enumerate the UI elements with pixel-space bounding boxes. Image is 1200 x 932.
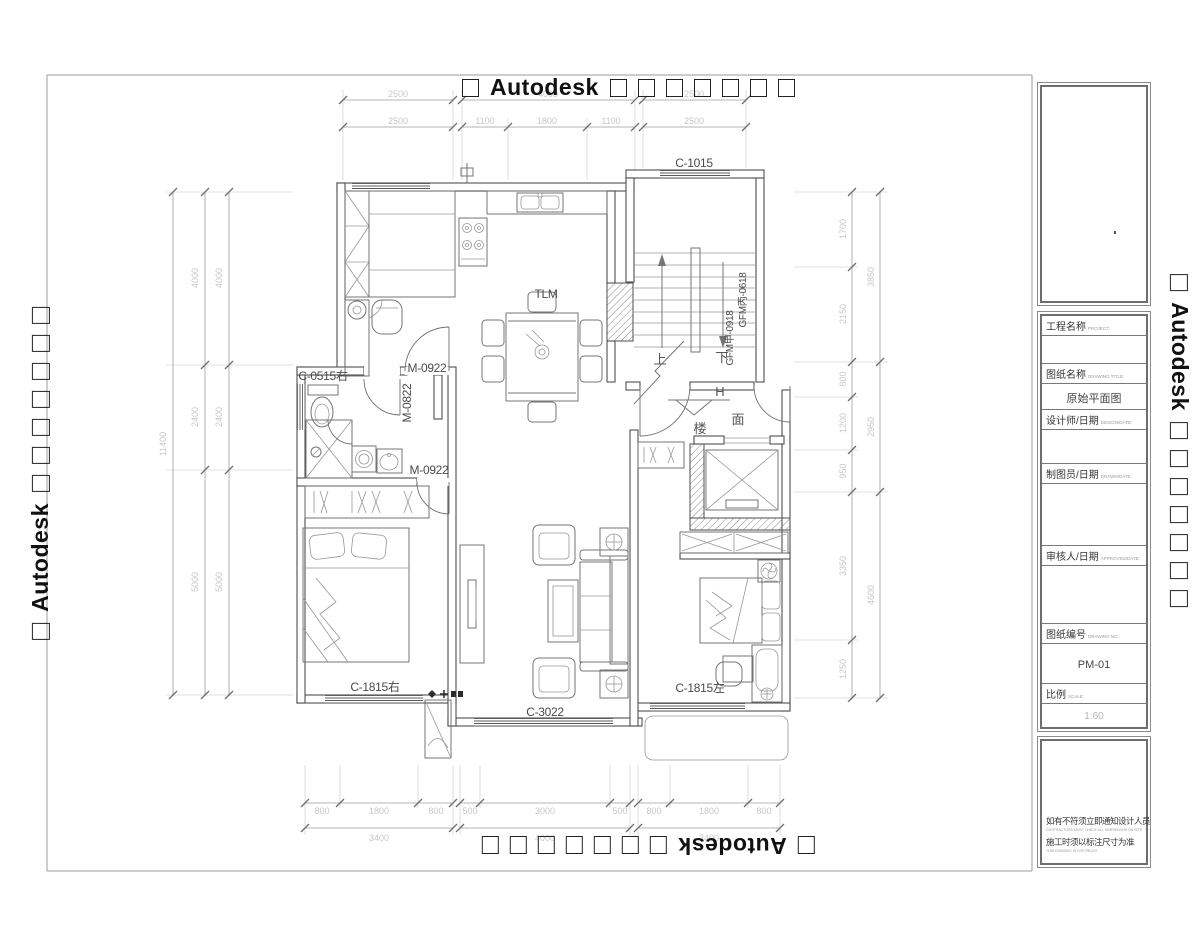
fan: [758, 560, 780, 582]
dim-value: 1100: [475, 116, 494, 126]
dim-value: 2500: [684, 116, 704, 126]
note-cn-1: 如有不符须立即通知设计人员: [1046, 815, 1142, 827]
note-cn-2: 施工时须以标注尺寸为准: [1046, 836, 1142, 848]
field-scale-value: 1:60: [1042, 704, 1146, 727]
watermark-left: Autodesk: [27, 307, 54, 640]
watermark-top: Autodesk: [462, 74, 795, 101]
plant: [348, 301, 366, 319]
dim-value: 1800: [699, 806, 719, 816]
dim-value: 1800: [369, 806, 389, 816]
watermark-bottom: Autodesk: [482, 832, 815, 859]
field-drawing-no-value: PM-01: [1042, 644, 1146, 684]
bay-window-outline: [645, 716, 788, 760]
dining-room-label: TLM: [534, 287, 557, 301]
elevator-core: [706, 438, 778, 510]
field-designer-value: [1042, 430, 1146, 464]
dim-value: 4600: [866, 585, 876, 605]
logo-dot: [1114, 231, 1116, 234]
window-label-c3022: C-3022: [526, 705, 564, 719]
dim-value: 2500: [388, 116, 408, 126]
field-scale-label: 比例SCALE:: [1042, 684, 1146, 704]
title-block-notes-box: 如有不符须立即通知设计人员 CONTRACTORS MUST CHECK ALL…: [1037, 736, 1151, 868]
watermark-glyph-box: [798, 837, 815, 855]
study-bed: [369, 191, 455, 297]
field-drawing-no-label: 图纸编号DRAWING NO.:: [1042, 624, 1146, 644]
sink: [517, 193, 563, 212]
closet-below-elevator: [680, 532, 788, 553]
dim-value: 5000: [214, 572, 224, 592]
dim-value: 1250: [838, 659, 848, 679]
living-room: [460, 525, 628, 698]
window-label-c1015: C-1015: [675, 156, 713, 170]
plan-labels: TLM C-1015 C-0515右 C-1815右 C-3022 C-1815…: [298, 156, 749, 719]
sheet-frame: [47, 75, 1032, 871]
dim-value: 1800: [537, 116, 557, 126]
armchair-bottom: [533, 658, 575, 698]
study-room: [345, 191, 455, 376]
tv-cabinet: [460, 545, 484, 663]
bath-window-c0515: [297, 384, 305, 430]
desk: [345, 300, 382, 376]
dim-left: 11400 4000 2400 5000 4000 2400 5000: [158, 188, 233, 699]
watermark-glyph-box: [1170, 274, 1188, 291]
master-bed: [303, 528, 409, 662]
title-block-fields: 工程名称PROJECT: 图纸名称DRAWING TITLE: 原始平面图 设计…: [1037, 311, 1151, 732]
field-designer-label: 设计师/日期DESIGN/DATE:: [1042, 410, 1146, 430]
stair-window-c1015: [660, 170, 730, 178]
dim-value: 800: [314, 806, 329, 816]
watermark-brand: Autodesk: [1166, 302, 1193, 411]
watermark-glyph-box: [462, 79, 479, 97]
dim-value: 4000: [214, 268, 224, 288]
desk-chair: [372, 300, 402, 334]
washer: [352, 446, 376, 472]
door-label-fire1: GFM甲-0918: [725, 310, 736, 366]
dim-value: 3000: [535, 806, 555, 816]
study-window: [352, 183, 430, 191]
dim-value: 800: [838, 371, 848, 386]
window-label-c1815r: C-1815右: [350, 679, 400, 694]
stair-up-label: 上: [653, 352, 666, 367]
door-label-fire2: GFM丙-0618: [738, 272, 749, 328]
field-drawing-title-value: 原始平面图: [1042, 384, 1146, 410]
master-door: [417, 478, 449, 514]
note-en-1: CONTRACTORS MUST CHECK ALL DIMENSIONS ON…: [1046, 828, 1142, 832]
master-window-c1815r: [325, 695, 423, 703]
kitchen: [459, 163, 607, 266]
sofa: [580, 550, 628, 671]
watermark-brand: Autodesk: [490, 74, 599, 101]
dim-right: 1700 2150 800 1200 950 3350 1250 3850 29…: [838, 188, 884, 702]
elevation-floor-label-2: 面: [731, 412, 744, 427]
second-bedroom: [645, 560, 788, 760]
dim-value: 3400: [369, 833, 389, 843]
stove: [459, 218, 487, 266]
door-label-master: M-0922: [410, 463, 450, 477]
field-approver-value: [1042, 566, 1146, 624]
bathroom: [306, 385, 402, 478]
field-drawing-title-label: 图纸名称DRAWING TITLE:: [1042, 364, 1146, 384]
dim-value: 3850: [866, 267, 876, 287]
lamp-table-bottom: [600, 670, 628, 698]
dim-value: 500: [462, 806, 477, 816]
watermark-brand: Autodesk: [27, 503, 54, 612]
door-label-study: M-0922: [408, 361, 448, 375]
second-window-c1815l: [650, 703, 745, 711]
flue: [461, 163, 473, 183]
watermark-glyph-box: [31, 623, 49, 640]
dim-value: 1200: [838, 413, 848, 433]
field-drafter-label: 制图员/日期DRAWN/DATE:: [1042, 464, 1146, 484]
watermark-right: Autodesk: [1166, 274, 1193, 607]
dim-value: 950: [838, 463, 848, 478]
dim-value: 800: [756, 806, 771, 816]
dim-value: 1100: [601, 116, 620, 126]
shower: [306, 420, 352, 478]
coffee-table: [548, 580, 578, 642]
dim-value: 2500: [388, 89, 408, 99]
entry-elevation-marker: H 楼 面: [668, 384, 745, 436]
dim-value: 800: [428, 806, 443, 816]
living-window-c3022: [474, 718, 613, 726]
watermark-brand: Autodesk: [678, 832, 787, 859]
field-project-label: 工程名称PROJECT:: [1042, 316, 1146, 336]
armchair-top: [533, 525, 575, 565]
dim-value: 2400: [214, 407, 224, 427]
field-project-value: [1042, 336, 1146, 364]
field-drafter-value: [1042, 484, 1146, 546]
window-label-c0515: C-0515右: [298, 368, 348, 383]
dim-value: 4000: [190, 268, 200, 288]
elevation-floor-label-1: 楼: [693, 421, 706, 436]
entry-door: [640, 386, 690, 436]
hall-closet: [638, 442, 684, 468]
floorplan-canvas: 2500 4000 2500 2500 1100 1800 1100 2500 …: [0, 0, 1200, 927]
window-label-c1815l: C-1815左: [675, 680, 725, 695]
dim-value: 2400: [190, 407, 200, 427]
master-closet: [305, 486, 429, 518]
elevation-h-label: H: [715, 384, 724, 399]
note-en-2: THIS DRAWING IS COPYRIGHT: [1046, 849, 1142, 853]
basin: [377, 449, 402, 473]
dim-value: 500: [612, 806, 627, 816]
dim-value: 1700: [838, 219, 848, 239]
lamp-table-top: [600, 528, 628, 556]
dim-value: 3350: [838, 556, 848, 576]
dim-value: 11400: [158, 432, 168, 456]
dim-value: 5000: [190, 572, 200, 592]
title-block-logo-box: [1037, 82, 1151, 306]
master-bedroom: [303, 486, 429, 662]
dim-value: 800: [646, 806, 661, 816]
dim-value: 2950: [866, 417, 876, 437]
door-label-bath: M-0822: [400, 383, 414, 423]
bathtub: [752, 645, 782, 702]
second-bed: [700, 578, 780, 643]
wardrobe: [345, 191, 369, 297]
cad-sheet: { "watermark": { "brand": "Autodesk" }, …: [0, 0, 1200, 927]
toilet: [308, 385, 338, 427]
dining-set: [482, 292, 602, 422]
field-approver-label: 审核人/日期APPROVED/DATE:: [1042, 546, 1146, 566]
dim-value: 2150: [838, 304, 848, 324]
